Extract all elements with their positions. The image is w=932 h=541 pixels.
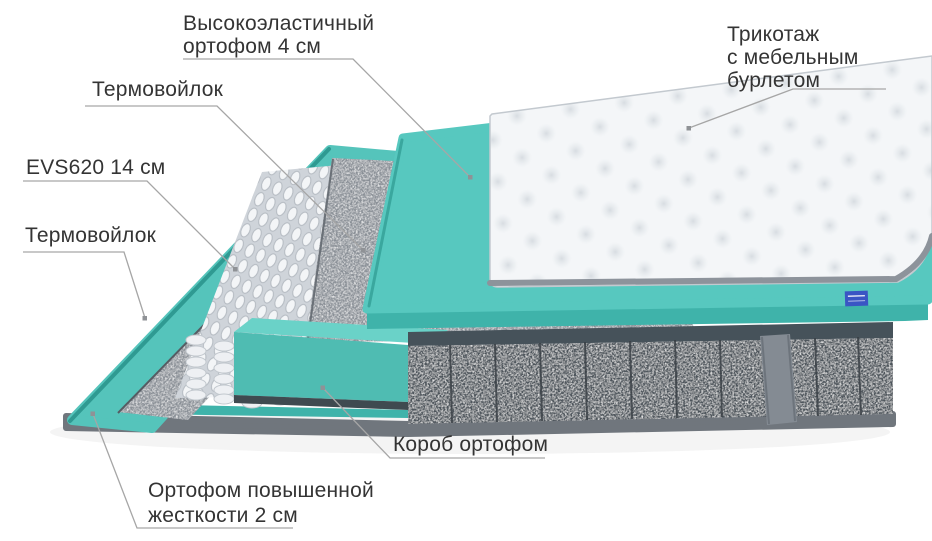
label-knit-cover: Трикотаж с мебельным бурлетом bbox=[727, 23, 859, 92]
label-line: ортофом 4 см bbox=[183, 35, 374, 58]
label-line: Термовойлок bbox=[92, 78, 223, 101]
label-thermo-felt-top: Термовойлок bbox=[92, 78, 223, 101]
brand-tag bbox=[845, 291, 869, 307]
label-thermo-felt-bottom: Термовойлок bbox=[25, 224, 156, 247]
label-elastic-foam: Высокоэластичный ортофом 4 см bbox=[183, 12, 374, 58]
label-evs-springs: EVS620 14 см bbox=[26, 156, 165, 179]
label-line: бурлетом bbox=[727, 69, 859, 92]
label-line: Короб ортофом bbox=[393, 433, 548, 456]
label-line: Ортофом повышенной bbox=[148, 478, 374, 503]
label-line: жесткости 2 см bbox=[148, 503, 374, 528]
mattress-layers-diagram: Высокоэластичный ортофом 4 см Трикотаж с… bbox=[0, 0, 932, 541]
label-line: Трикотаж bbox=[727, 23, 859, 46]
label-hard-foam: Ортофом повышенной жесткости 2 см bbox=[148, 478, 374, 528]
label-line: EVS620 14 см bbox=[26, 156, 165, 179]
label-line: Высокоэластичный bbox=[183, 12, 374, 35]
leader-thermo-felt-bottom bbox=[23, 252, 147, 321]
mattress-side bbox=[408, 322, 893, 425]
layer-quilted-cover bbox=[490, 56, 932, 287]
label-line: Термовойлок bbox=[25, 224, 156, 247]
label-foam-box: Короб ортофом bbox=[393, 433, 548, 456]
label-line: с мебельным bbox=[727, 46, 859, 69]
